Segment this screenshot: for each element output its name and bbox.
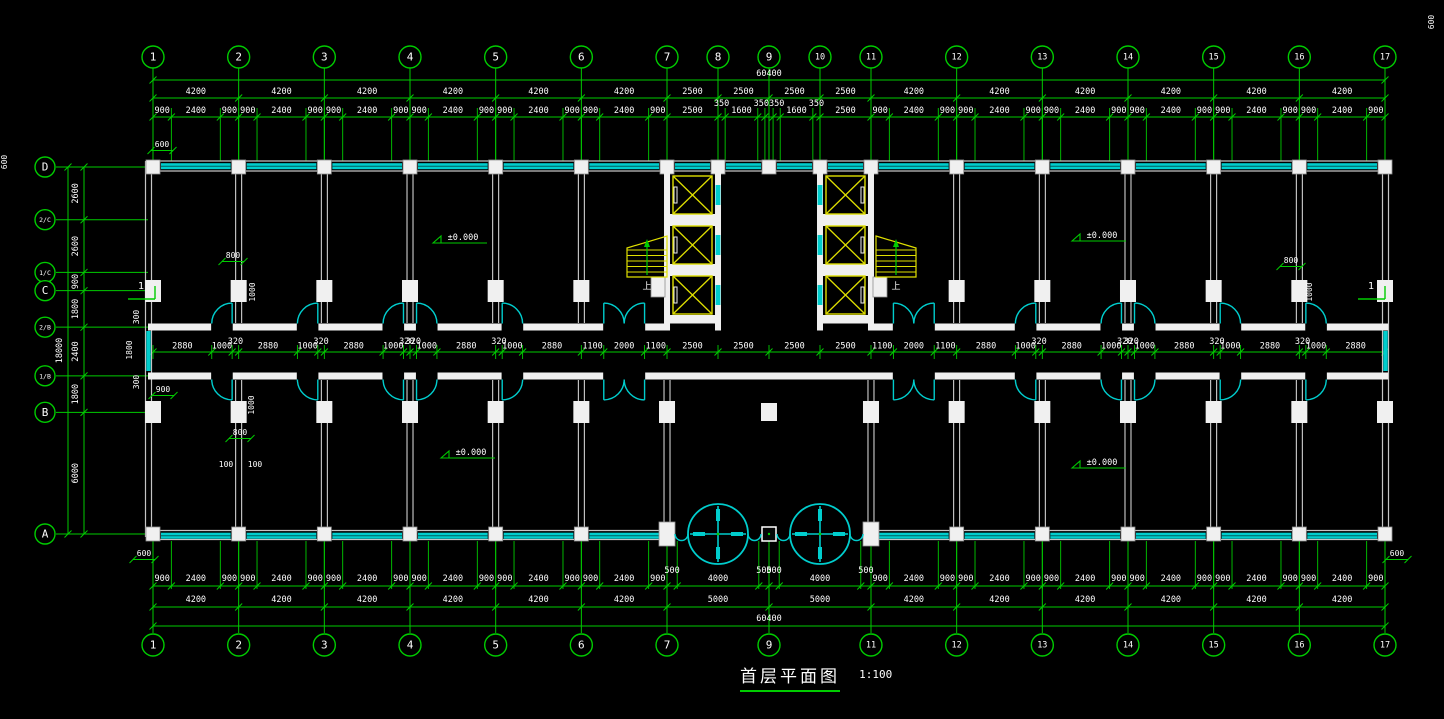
svg-text:2880: 2880 xyxy=(172,342,192,352)
svg-text:2880: 2880 xyxy=(258,342,278,352)
svg-text:1800: 1800 xyxy=(71,384,81,404)
svg-text:900: 900 xyxy=(1129,106,1144,116)
svg-text:4200: 4200 xyxy=(1075,87,1095,97)
svg-text:4: 4 xyxy=(407,639,414,652)
svg-text:2400: 2400 xyxy=(1246,574,1266,584)
svg-text:4200: 4200 xyxy=(1075,595,1095,605)
svg-text:2400: 2400 xyxy=(1161,574,1181,584)
svg-text:4200: 4200 xyxy=(357,595,377,605)
svg-text:2400: 2400 xyxy=(614,574,634,584)
svg-text:1600: 1600 xyxy=(731,106,751,116)
svg-text:3: 3 xyxy=(321,639,328,652)
svg-text:2880: 2880 xyxy=(1260,342,1280,352)
svg-text:100: 100 xyxy=(219,460,234,469)
svg-text:900: 900 xyxy=(1025,574,1040,584)
svg-text:4200: 4200 xyxy=(186,87,206,97)
svg-text:1000: 1000 xyxy=(502,342,522,352)
drawing-title: 首层平面图 xyxy=(740,662,840,692)
svg-text:2400: 2400 xyxy=(186,106,206,116)
svg-text:2880: 2880 xyxy=(456,342,476,352)
svg-text:11: 11 xyxy=(866,53,876,63)
svg-text:4200: 4200 xyxy=(904,595,924,605)
svg-text:2880: 2880 xyxy=(976,342,996,352)
svg-text:2400: 2400 xyxy=(614,106,634,116)
svg-text:8: 8 xyxy=(715,51,722,64)
svg-text:2400: 2400 xyxy=(1075,106,1095,116)
svg-text:60400: 60400 xyxy=(756,614,782,624)
svg-text:900: 900 xyxy=(497,574,512,584)
svg-text:900: 900 xyxy=(154,574,169,584)
svg-text:2500: 2500 xyxy=(682,87,702,97)
svg-text:6000: 6000 xyxy=(71,463,81,483)
svg-text:4200: 4200 xyxy=(357,87,377,97)
svg-text:900: 900 xyxy=(393,574,408,584)
svg-text:12: 12 xyxy=(952,641,962,651)
svg-text:5: 5 xyxy=(492,51,499,64)
svg-text:900: 900 xyxy=(958,106,973,116)
svg-text:900: 900 xyxy=(583,106,598,116)
svg-text:2500: 2500 xyxy=(835,106,855,116)
svg-text:2500: 2500 xyxy=(784,342,804,352)
svg-text:2400: 2400 xyxy=(71,341,81,361)
svg-text:600: 600 xyxy=(0,155,9,170)
svg-text:2400: 2400 xyxy=(1246,106,1266,116)
svg-text:900: 900 xyxy=(1111,574,1126,584)
svg-text:2/B: 2/B xyxy=(39,324,51,332)
svg-text:900: 900 xyxy=(1044,106,1059,116)
svg-text:2880: 2880 xyxy=(1174,342,1194,352)
svg-text:2400: 2400 xyxy=(904,106,924,116)
svg-text:2: 2 xyxy=(235,639,242,652)
svg-text:2400: 2400 xyxy=(528,106,548,116)
svg-text:15: 15 xyxy=(1209,53,1219,63)
svg-text:3: 3 xyxy=(321,51,328,64)
svg-text:2400: 2400 xyxy=(271,106,291,116)
svg-text:900: 900 xyxy=(564,574,579,584)
svg-text:5000: 5000 xyxy=(708,595,728,605)
svg-text:±0.000: ±0.000 xyxy=(456,448,487,458)
svg-text:600: 600 xyxy=(1390,549,1405,558)
svg-text:1000: 1000 xyxy=(248,282,257,301)
svg-text:2400: 2400 xyxy=(357,106,377,116)
svg-text:900: 900 xyxy=(650,106,665,116)
svg-text:2400: 2400 xyxy=(357,574,377,584)
svg-text:2500: 2500 xyxy=(682,342,702,352)
svg-text:600: 600 xyxy=(155,140,170,149)
svg-text:2500: 2500 xyxy=(682,106,702,116)
svg-text:2400: 2400 xyxy=(989,106,1009,116)
svg-text:2000: 2000 xyxy=(614,342,634,352)
svg-text:2500: 2500 xyxy=(784,87,804,97)
svg-text:1: 1 xyxy=(1368,281,1374,292)
svg-text:1000: 1000 xyxy=(1305,282,1314,301)
svg-text:900: 900 xyxy=(1111,106,1126,116)
svg-text:900: 900 xyxy=(393,106,408,116)
svg-text:500: 500 xyxy=(858,566,873,576)
svg-text:14: 14 xyxy=(1123,53,1133,63)
svg-text:2500: 2500 xyxy=(835,342,855,352)
svg-text:1100: 1100 xyxy=(872,342,892,352)
svg-text:900: 900 xyxy=(1368,106,1383,116)
svg-text:2880: 2880 xyxy=(1061,342,1081,352)
svg-text:900: 900 xyxy=(326,574,341,584)
svg-text:7: 7 xyxy=(664,639,671,652)
svg-text:900: 900 xyxy=(156,385,171,394)
svg-text:800: 800 xyxy=(1284,256,1299,265)
svg-text:13: 13 xyxy=(1037,641,1047,651)
svg-text:2400: 2400 xyxy=(989,574,1009,584)
svg-text:2500: 2500 xyxy=(733,342,753,352)
drawing-scale: 1:100 xyxy=(859,668,892,681)
svg-text:13: 13 xyxy=(1037,53,1047,63)
svg-text:900: 900 xyxy=(154,106,169,116)
svg-text:14: 14 xyxy=(1123,641,1133,651)
svg-text:1: 1 xyxy=(150,51,157,64)
svg-text:500: 500 xyxy=(664,566,679,576)
cad-canvas: 6040042004200420042004200420025002500250… xyxy=(0,0,1444,719)
svg-text:7: 7 xyxy=(664,51,671,64)
svg-text:2400: 2400 xyxy=(186,574,206,584)
svg-text:17: 17 xyxy=(1380,53,1390,63)
svg-text:15: 15 xyxy=(1209,641,1219,651)
svg-text:±0.000: ±0.000 xyxy=(1087,458,1118,468)
svg-text:900: 900 xyxy=(497,106,512,116)
svg-text:2: 2 xyxy=(235,51,242,64)
svg-text:上: 上 xyxy=(891,281,900,292)
svg-text:4200: 4200 xyxy=(1246,87,1266,97)
svg-text:2400: 2400 xyxy=(271,574,291,584)
svg-text:A: A xyxy=(42,528,49,541)
svg-text:4200: 4200 xyxy=(614,87,634,97)
svg-text:320: 320 xyxy=(313,337,328,347)
svg-text:9: 9 xyxy=(766,51,773,64)
svg-text:4200: 4200 xyxy=(528,87,548,97)
svg-text:17: 17 xyxy=(1380,641,1390,651)
svg-text:900: 900 xyxy=(1215,574,1230,584)
svg-text:900: 900 xyxy=(1215,106,1230,116)
svg-text:2400: 2400 xyxy=(1075,574,1095,584)
svg-text:900: 900 xyxy=(1129,574,1144,584)
svg-text:1/B: 1/B xyxy=(39,372,51,380)
svg-text:900: 900 xyxy=(479,574,494,584)
svg-text:350: 350 xyxy=(809,99,824,109)
svg-text:900: 900 xyxy=(326,106,341,116)
svg-text:4200: 4200 xyxy=(989,87,1009,97)
svg-text:900: 900 xyxy=(71,274,81,289)
svg-text:B: B xyxy=(42,406,49,419)
svg-text:5000: 5000 xyxy=(810,595,830,605)
svg-text:C: C xyxy=(42,284,49,297)
svg-text:900: 900 xyxy=(872,106,887,116)
svg-text:320: 320 xyxy=(228,337,243,347)
svg-text:900: 900 xyxy=(1301,106,1316,116)
svg-text:6: 6 xyxy=(578,639,585,652)
svg-text:1800: 1800 xyxy=(125,340,134,359)
svg-text:4200: 4200 xyxy=(1161,87,1181,97)
svg-text:900: 900 xyxy=(958,574,973,584)
svg-text:900: 900 xyxy=(1368,574,1383,584)
svg-text:900: 900 xyxy=(240,574,255,584)
svg-text:900: 900 xyxy=(564,106,579,116)
svg-text:11: 11 xyxy=(866,641,876,651)
svg-text:1800: 1800 xyxy=(71,299,81,319)
svg-text:4: 4 xyxy=(407,51,414,64)
svg-text:10: 10 xyxy=(815,53,825,63)
svg-text:1000: 1000 xyxy=(416,342,436,352)
svg-text:2/C: 2/C xyxy=(39,216,51,224)
svg-text:D: D xyxy=(42,161,49,174)
svg-text:2600: 2600 xyxy=(71,236,81,256)
svg-text:12: 12 xyxy=(952,53,962,63)
svg-text:900: 900 xyxy=(1044,574,1059,584)
svg-text:4200: 4200 xyxy=(528,595,548,605)
svg-text:4200: 4200 xyxy=(1161,595,1181,605)
svg-text:2400: 2400 xyxy=(1332,106,1352,116)
svg-text:2400: 2400 xyxy=(528,574,548,584)
svg-text:900: 900 xyxy=(583,574,598,584)
svg-text:900: 900 xyxy=(240,106,255,116)
svg-text:5: 5 xyxy=(492,639,499,652)
svg-text:800: 800 xyxy=(226,251,241,260)
svg-text:2880: 2880 xyxy=(343,342,363,352)
svg-text:4200: 4200 xyxy=(1332,595,1352,605)
svg-text:4200: 4200 xyxy=(614,595,634,605)
svg-text:900: 900 xyxy=(872,574,887,584)
svg-text:1100: 1100 xyxy=(582,342,602,352)
svg-text:1: 1 xyxy=(150,639,157,652)
svg-text:100: 100 xyxy=(248,460,263,469)
svg-text:1600: 1600 xyxy=(786,106,806,116)
svg-text:4200: 4200 xyxy=(1246,595,1266,605)
svg-text:900: 900 xyxy=(1197,574,1212,584)
svg-text:350: 350 xyxy=(714,99,729,109)
svg-text:600: 600 xyxy=(137,549,152,558)
svg-text:2880: 2880 xyxy=(542,342,562,352)
svg-text:4000: 4000 xyxy=(810,574,830,584)
svg-text:2400: 2400 xyxy=(904,574,924,584)
svg-text:4200: 4200 xyxy=(1332,87,1352,97)
svg-text:2500: 2500 xyxy=(835,87,855,97)
svg-text:上: 上 xyxy=(642,281,651,292)
svg-text:1: 1 xyxy=(138,281,144,292)
svg-text:±0.000: ±0.000 xyxy=(448,233,479,243)
svg-text:800: 800 xyxy=(233,428,248,437)
svg-text:16: 16 xyxy=(1294,53,1304,63)
svg-text:9: 9 xyxy=(766,639,773,652)
svg-text:1100: 1100 xyxy=(935,342,955,352)
svg-text:2400: 2400 xyxy=(443,106,463,116)
svg-text:900: 900 xyxy=(412,574,427,584)
svg-text:1100: 1100 xyxy=(646,342,666,352)
svg-text:900: 900 xyxy=(222,106,237,116)
svg-text:900: 900 xyxy=(650,574,665,584)
svg-text:300: 300 xyxy=(132,375,141,390)
svg-text:900: 900 xyxy=(1282,106,1297,116)
svg-text:900: 900 xyxy=(222,574,237,584)
svg-text:1000: 1000 xyxy=(1134,342,1154,352)
svg-text:320: 320 xyxy=(1031,337,1046,347)
svg-text:6: 6 xyxy=(578,51,585,64)
svg-text:2400: 2400 xyxy=(443,574,463,584)
svg-text:4200: 4200 xyxy=(443,595,463,605)
svg-text:1000: 1000 xyxy=(1306,342,1326,352)
svg-text:18000: 18000 xyxy=(55,338,65,364)
svg-text:4200: 4200 xyxy=(186,595,206,605)
svg-text:900: 900 xyxy=(1025,106,1040,116)
svg-text:2880: 2880 xyxy=(1345,342,1365,352)
svg-text:2400: 2400 xyxy=(1332,574,1352,584)
svg-text:900: 900 xyxy=(412,106,427,116)
svg-text:4200: 4200 xyxy=(989,595,1009,605)
svg-text:1000: 1000 xyxy=(1220,342,1240,352)
svg-text:4200: 4200 xyxy=(443,87,463,97)
svg-text:900: 900 xyxy=(307,106,322,116)
svg-text:300: 300 xyxy=(132,310,141,325)
svg-text:900: 900 xyxy=(940,574,955,584)
svg-text:4200: 4200 xyxy=(904,87,924,97)
svg-text:1/C: 1/C xyxy=(39,269,51,277)
svg-text:2000: 2000 xyxy=(904,342,924,352)
svg-text:2500: 2500 xyxy=(733,87,753,97)
svg-text:350: 350 xyxy=(754,99,769,109)
svg-text:4000: 4000 xyxy=(708,574,728,584)
svg-text:900: 900 xyxy=(940,106,955,116)
svg-text:500: 500 xyxy=(766,566,781,576)
svg-text:4200: 4200 xyxy=(271,87,291,97)
svg-text:2400: 2400 xyxy=(1161,106,1181,116)
floor-plan-drawing: 6040042004200420042004200420025002500250… xyxy=(0,0,1444,719)
svg-text:350: 350 xyxy=(769,99,784,109)
svg-text:900: 900 xyxy=(479,106,494,116)
svg-text:16: 16 xyxy=(1294,641,1304,651)
svg-text:900: 900 xyxy=(1282,574,1297,584)
svg-text:900: 900 xyxy=(307,574,322,584)
svg-text:±0.000: ±0.000 xyxy=(1087,231,1118,241)
svg-text:600: 600 xyxy=(1427,15,1436,30)
svg-text:60400: 60400 xyxy=(756,69,782,79)
drawing-title-block: 首层平面图 1:100 xyxy=(740,662,892,692)
svg-text:900: 900 xyxy=(1301,574,1316,584)
svg-text:900: 900 xyxy=(1197,106,1212,116)
svg-text:2600: 2600 xyxy=(71,183,81,203)
svg-text:4200: 4200 xyxy=(271,595,291,605)
svg-text:1000: 1000 xyxy=(247,395,256,414)
